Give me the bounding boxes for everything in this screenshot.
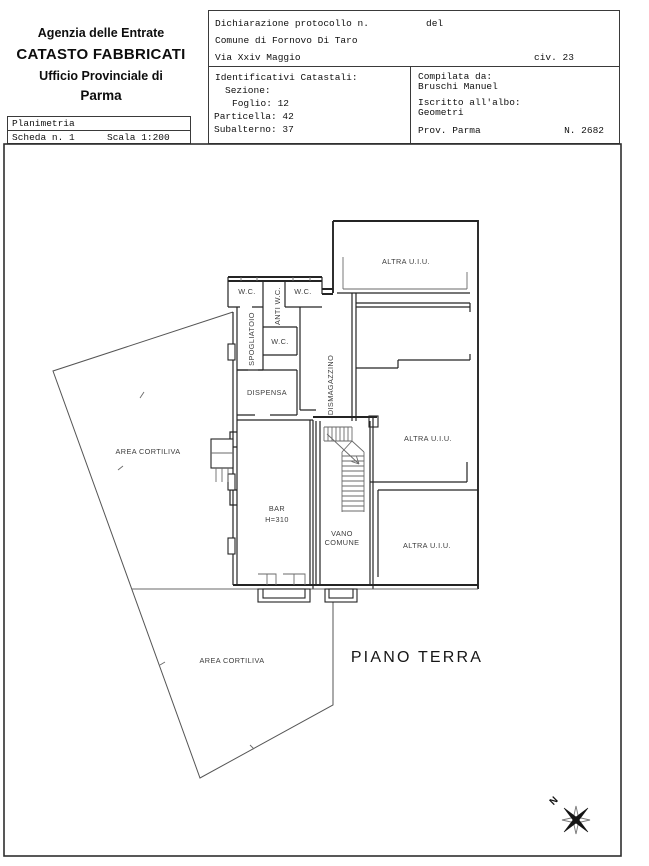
room-label-dismagazzino: DISMAGAZZINO xyxy=(326,355,335,415)
area-label-cortiliva-bottom: AREA CORTILIVA xyxy=(200,656,265,665)
room-label-dispensa: DISPENSA xyxy=(247,388,287,397)
floor-title: PIANO TERRA xyxy=(351,649,483,666)
room-label-bar-height: H=310 xyxy=(265,515,289,524)
room-label-altra-uiu-top: ALTRA U.I.U. xyxy=(382,257,430,266)
floor-plan-canvas: W.C. W.C. ANTI W.C. SPOGLIATOIO W.C. DIS… xyxy=(0,0,649,866)
room-label-spogliatoio: SPOGLIATOIO xyxy=(247,312,256,366)
room-label-wc-mid: W.C. xyxy=(271,337,288,346)
room-label-wc-top-left: W.C. xyxy=(238,287,255,296)
room-label-bar: BAR xyxy=(269,504,285,513)
cadastral-plan-sheet: { "header": { "agency": { "line1": "Agen… xyxy=(0,0,649,866)
room-label-altra-uiu-mid: ALTRA U.I.U. xyxy=(404,434,452,443)
room-label-altra-uiu-bottom: ALTRA U.I.U. xyxy=(403,541,451,550)
room-label-vano-line2: COMUNE xyxy=(325,538,360,547)
room-label-wc-top-right: W.C. xyxy=(294,287,311,296)
room-label-anti-wc: ANTI W.C. xyxy=(273,287,282,325)
area-label-cortiliva-left: AREA CORTILIVA xyxy=(116,447,181,456)
room-label-vano-line1: VANO xyxy=(331,529,353,538)
